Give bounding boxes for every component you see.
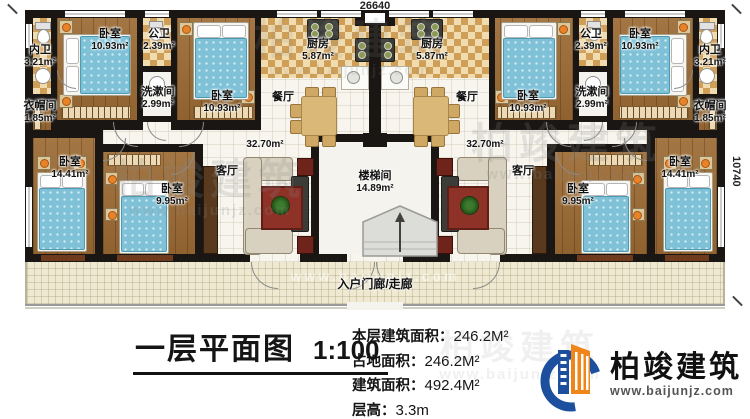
room-label-living-right: 客厅 xyxy=(512,165,534,178)
pillow xyxy=(122,183,144,196)
window-sill xyxy=(665,255,709,261)
blanket xyxy=(195,38,247,98)
room-label-bedroom-left-inner: 卧室10.93m² xyxy=(203,90,240,115)
blanket xyxy=(39,188,85,250)
blanket xyxy=(503,38,555,98)
room-label-kitchen-left: 厨房5.87m² xyxy=(302,38,334,63)
nightstand xyxy=(105,172,118,185)
wall-segment xyxy=(143,66,171,72)
stove-icon xyxy=(411,19,443,40)
nightstand xyxy=(37,156,51,170)
blanket xyxy=(665,188,711,250)
chair xyxy=(414,135,428,147)
room-label-porch: 入户门廊/走廊 xyxy=(337,278,412,291)
brand-logo-icon xyxy=(540,336,606,416)
dimension-right: 10740 xyxy=(730,156,742,187)
pillow xyxy=(222,25,246,38)
pillow xyxy=(671,38,684,64)
plant-icon xyxy=(461,197,478,214)
sink-icon xyxy=(347,71,360,84)
chair xyxy=(431,135,445,147)
room-label-bedroom-right-large: 卧室14.41m² xyxy=(661,156,698,181)
area-label-living-left: 32.70m² xyxy=(246,139,283,152)
stair-symbol xyxy=(357,202,443,258)
wall-segment xyxy=(489,10,495,130)
plan-title-row: 一层平面图 1:100 xyxy=(133,324,388,375)
window xyxy=(625,11,685,17)
nightstand xyxy=(677,94,691,108)
sink-icon xyxy=(390,71,403,84)
dimension-tick xyxy=(7,4,18,15)
room-label-bedroom-right-outer: 卧室10.93m² xyxy=(621,28,658,53)
sink-icon xyxy=(699,68,715,84)
chair xyxy=(322,135,336,147)
nightstand xyxy=(179,22,193,36)
wall-segment xyxy=(255,10,261,130)
chair xyxy=(448,104,460,118)
window xyxy=(581,11,605,17)
wall-segment xyxy=(25,130,101,138)
stat-building-area: 建筑面积：492.4M² xyxy=(352,374,509,399)
window xyxy=(718,187,724,247)
nightstand xyxy=(105,208,118,221)
room-label-neiwei-left: 内卫3.21m² xyxy=(24,44,56,69)
room-label-living-left: 客厅 xyxy=(216,165,238,178)
wall-segment xyxy=(649,130,725,138)
dining-table xyxy=(301,96,337,136)
porch-entry-gap xyxy=(347,302,403,310)
stat-floor-height: 层高：3.3m xyxy=(352,399,509,419)
stove-icon xyxy=(307,19,339,40)
cooktop-icon xyxy=(380,38,395,62)
tv-cabinet xyxy=(203,166,218,254)
sofa xyxy=(457,228,505,254)
window-sill xyxy=(577,255,633,261)
wall-niche xyxy=(365,13,375,23)
pillow xyxy=(529,25,553,38)
window xyxy=(145,11,169,17)
nightstand xyxy=(677,20,691,34)
window xyxy=(65,11,125,17)
room-label-bedroom-left-small: 卧室9.95m² xyxy=(156,183,188,208)
cabinet xyxy=(297,236,314,254)
room-label-yimaojian-right: 衣帽间1.85m² xyxy=(694,100,727,125)
floor-plan: 柏竣建筑 www.baijunjz.com 柏竣建筑 www.baijunjz.… xyxy=(25,10,725,310)
sink-icon xyxy=(35,68,51,84)
window xyxy=(277,11,317,17)
floor-plan-page: 26640 10740 xyxy=(0,0,750,419)
room-label-gongwei-left: 公卫2.39m² xyxy=(143,28,175,53)
sofa xyxy=(245,228,293,254)
toilet-icon xyxy=(37,29,50,44)
tv-cabinet xyxy=(532,166,547,254)
stat-land-area: 占地面积：246.2M² xyxy=(352,350,509,375)
window-sill xyxy=(41,255,85,261)
nightstand xyxy=(699,156,713,170)
chair xyxy=(305,135,319,147)
pillow xyxy=(197,25,221,38)
room-label-dining-left: 餐厅 xyxy=(272,91,294,104)
room-label-bedroom-right-inner: 卧室10.93m² xyxy=(509,90,546,115)
chair xyxy=(448,120,460,134)
stat-floor-area: 本层建筑面积：246.2M² xyxy=(352,325,509,350)
nightstand xyxy=(557,22,571,36)
room-label-bedroom-left-large: 卧室14.41m² xyxy=(51,156,88,181)
wall-segment xyxy=(195,144,203,262)
room-label-gongwei-right: 公卫2.39m² xyxy=(575,28,607,53)
wall-segment xyxy=(579,66,607,72)
nightstand xyxy=(632,172,645,185)
room-label-xishujian-left: 洗漱间2.99m² xyxy=(142,86,175,111)
cabinet xyxy=(297,158,314,176)
dimension-tick xyxy=(731,4,742,15)
toilet-icon xyxy=(700,29,713,44)
room-label-stairwell: 楼梯间14.89m² xyxy=(356,170,393,195)
nightstand xyxy=(59,94,73,108)
door-arc xyxy=(147,122,166,141)
dimension-tick xyxy=(732,296,743,307)
brand-name: 柏竣建筑 xyxy=(610,342,742,386)
brand-site: www.baijunjz.com xyxy=(610,384,734,398)
pillow xyxy=(606,183,628,196)
wall-segment xyxy=(607,10,613,130)
cooktop-icon xyxy=(355,38,370,62)
wall-segment xyxy=(300,254,347,262)
pillow xyxy=(504,25,528,38)
window xyxy=(26,187,32,247)
wall-niche xyxy=(375,13,385,23)
nightstand xyxy=(59,20,73,34)
window xyxy=(433,11,473,17)
window xyxy=(321,11,361,17)
room-label-bedroom-right-small: 卧室9.95m² xyxy=(562,183,594,208)
room-label-dining-right: 餐厅 xyxy=(456,91,478,104)
nightstand xyxy=(632,208,645,221)
window-sill xyxy=(117,255,173,261)
page-title: 一层平面图 xyxy=(135,324,295,368)
door-arc xyxy=(584,122,603,141)
pillow xyxy=(66,38,79,64)
wall-segment xyxy=(547,144,555,262)
room-label-xishujian-right: 洗漱间2.99m² xyxy=(576,86,609,111)
window xyxy=(389,11,429,17)
cabinet xyxy=(436,158,453,176)
room-label-kitchen-right: 厨房5.87m² xyxy=(416,38,448,63)
room-label-neiwei-right: 内卫3.21m² xyxy=(694,44,726,69)
area-label-living-right: 32.70m² xyxy=(466,139,503,152)
dining-table xyxy=(413,96,449,136)
plan-stats: 本层建筑面积：246.2M² 占地面积：246.2M² 建筑面积：492.4M²… xyxy=(352,325,509,419)
room-label-bedroom-left-outer: 卧室10.93m² xyxy=(91,28,128,53)
plant-icon xyxy=(272,197,289,214)
room-label-yimaojian-left: 衣帽间1.85m² xyxy=(24,100,57,125)
